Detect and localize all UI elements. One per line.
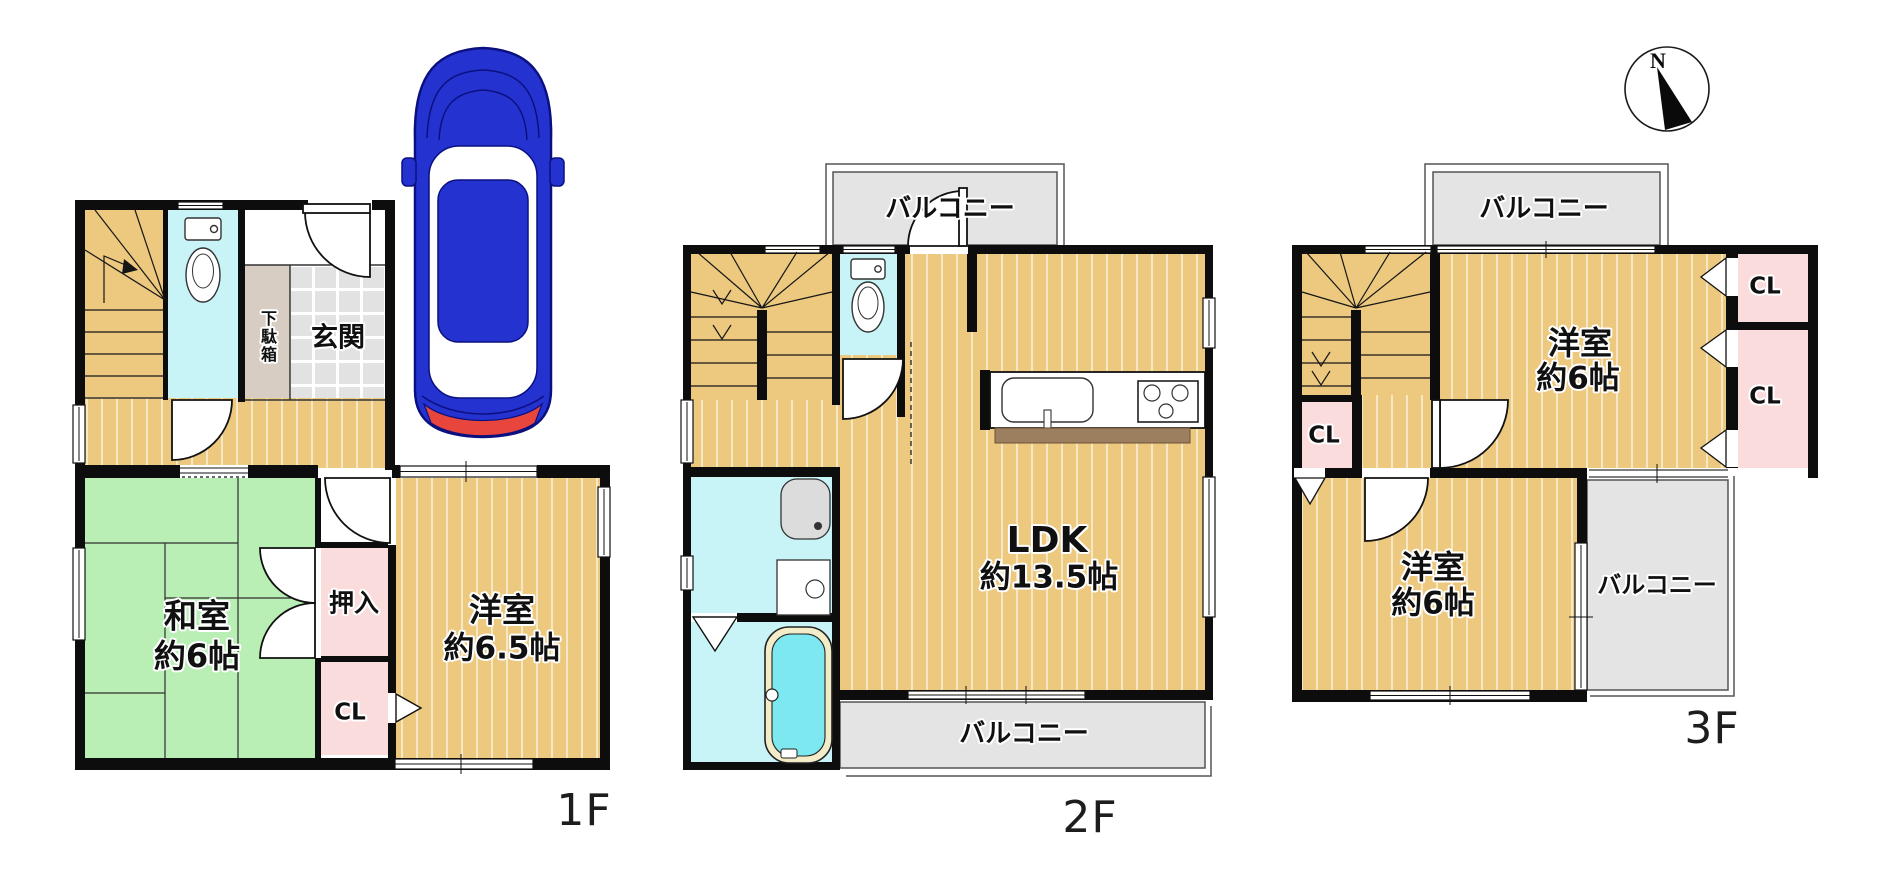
balcony-label-3f-right: バルコニー xyxy=(1597,573,1717,597)
car-icon xyxy=(402,48,564,437)
car-mirror-right xyxy=(550,158,564,186)
closet-label-right-top: CL xyxy=(1749,276,1781,299)
floor-label-1f: 1F xyxy=(556,789,611,833)
balcony-label-2f-bottom: バルコニー xyxy=(959,721,1088,747)
compass-icon xyxy=(1625,47,1709,131)
balcony-label-3f-top: バルコニー xyxy=(1479,196,1608,222)
hallway-1f xyxy=(85,398,385,468)
room-size-ldk: 約13.5帖 xyxy=(980,563,1119,594)
room-label-japanese-room: 和室 xyxy=(164,600,230,633)
toilet-icon-1f xyxy=(185,218,221,302)
floorplan-drawing xyxy=(0,0,1893,872)
compass-north-label: N xyxy=(1650,50,1666,72)
floor-plan-2f xyxy=(681,164,1215,776)
room-size-western-room-1f: 約6.5帖 xyxy=(444,634,561,665)
sliding-door-1f xyxy=(180,465,248,478)
floor-plan-3f xyxy=(1292,164,1818,705)
floor-label-3f: 3F xyxy=(1684,707,1739,751)
closet-label-left-3f: CL xyxy=(1308,425,1340,448)
stairs-3f-floor xyxy=(1302,252,1430,395)
car-mirror-left xyxy=(402,158,416,186)
room-label-closet-1f: CL xyxy=(334,702,366,725)
room-label-western-room-upper: 洋室 xyxy=(1548,327,1612,359)
bathtub-icon xyxy=(765,627,832,763)
car-roof xyxy=(438,180,528,342)
room-label-shoe-box: 下駄箱 xyxy=(259,310,275,364)
room-size-japanese-room: 約6帖 xyxy=(154,640,240,672)
room-label-entrance: 玄関 xyxy=(311,325,365,352)
balcony-label-2f-top: バルコニー xyxy=(885,196,1014,222)
vanity-sink-icon xyxy=(781,479,830,539)
floor-label-2f: 2F xyxy=(1062,796,1117,840)
room-label-western-room-1f: 洋室 xyxy=(469,594,535,627)
closet-label-right-bottom: CL xyxy=(1749,386,1781,409)
counter-edge xyxy=(995,428,1190,443)
kitchen-counter xyxy=(980,370,1205,443)
room-label-western-room-lower: 洋室 xyxy=(1401,551,1465,583)
room-size-western-room-upper: 約6帖 xyxy=(1536,364,1620,395)
toilet-icon-2f xyxy=(851,259,885,332)
room-label-ldk: LDK xyxy=(1007,523,1088,559)
floorplan-page: 玄関 下駄箱 和室 約6帖 押入 CL 洋室 約6.5帖 1F バルコニー LD… xyxy=(0,0,1893,872)
stairs-1f-floor xyxy=(85,210,165,398)
front-door-leaf xyxy=(303,204,370,213)
room-size-western-room-lower: 約6帖 xyxy=(1391,589,1475,620)
washer-pan-icon xyxy=(777,560,830,615)
room-label-oshiire: 押入 xyxy=(329,591,379,616)
